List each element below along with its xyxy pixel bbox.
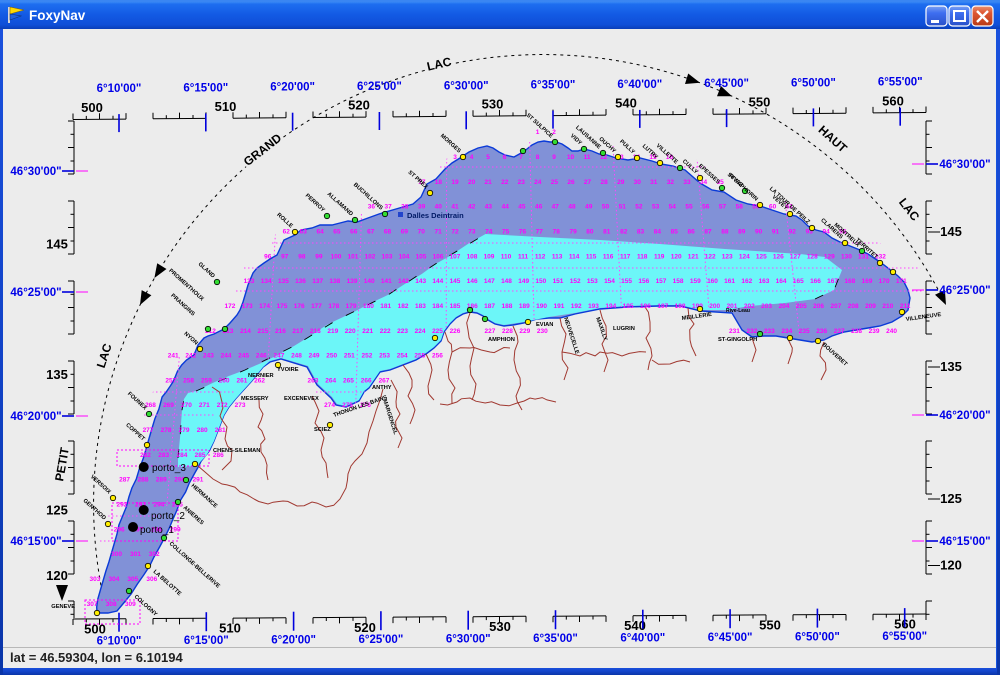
svg-text:54: 54 bbox=[669, 204, 677, 211]
svg-text:118: 118 bbox=[637, 253, 648, 260]
svg-text:3: 3 bbox=[453, 154, 457, 161]
svg-text:76: 76 bbox=[519, 229, 527, 236]
svg-text:235: 235 bbox=[799, 328, 810, 335]
svg-text:EVIAN: EVIAN bbox=[536, 322, 553, 328]
svg-text:SCIEZ: SCIEZ bbox=[314, 427, 331, 433]
svg-text:173: 173 bbox=[242, 303, 253, 310]
svg-text:62: 62 bbox=[283, 229, 291, 236]
svg-text:254: 254 bbox=[397, 353, 408, 360]
svg-text:19: 19 bbox=[451, 179, 459, 186]
svg-text:208: 208 bbox=[848, 303, 859, 310]
svg-text:FoxyNav: FoxyNav bbox=[29, 8, 86, 23]
svg-text:31: 31 bbox=[650, 179, 658, 186]
svg-text:156: 156 bbox=[638, 278, 649, 285]
svg-text:278: 278 bbox=[161, 427, 172, 434]
svg-text:24: 24 bbox=[534, 179, 542, 186]
svg-text:139: 139 bbox=[347, 278, 358, 285]
svg-text:28: 28 bbox=[600, 179, 608, 186]
svg-text:Dalles Deintrain: Dalles Deintrain bbox=[407, 211, 464, 220]
svg-text:141: 141 bbox=[381, 278, 392, 285]
svg-text:porto_1: porto_1 bbox=[140, 525, 174, 536]
svg-text:47: 47 bbox=[552, 204, 560, 211]
svg-text:11: 11 bbox=[584, 154, 591, 161]
svg-text:37: 37 bbox=[384, 204, 392, 211]
svg-text:33: 33 bbox=[683, 179, 691, 186]
svg-text:98: 98 bbox=[298, 253, 306, 260]
svg-text:107: 107 bbox=[450, 253, 461, 260]
svg-text:74: 74 bbox=[485, 229, 493, 236]
svg-text:66: 66 bbox=[350, 229, 358, 236]
svg-text:111: 111 bbox=[518, 253, 529, 260]
svg-text:6°10'00": 6°10'00" bbox=[97, 636, 142, 648]
svg-text:175: 175 bbox=[276, 303, 287, 310]
svg-text:6°50'00": 6°50'00" bbox=[795, 632, 840, 644]
svg-text:550: 550 bbox=[749, 94, 771, 109]
svg-text:138: 138 bbox=[329, 278, 340, 285]
svg-text:210: 210 bbox=[882, 303, 893, 310]
svg-text:240: 240 bbox=[886, 328, 897, 335]
svg-text:500: 500 bbox=[81, 100, 103, 115]
svg-text:257: 257 bbox=[165, 377, 176, 384]
svg-text:179: 179 bbox=[346, 303, 357, 310]
svg-text:125: 125 bbox=[46, 503, 68, 518]
svg-text:44: 44 bbox=[502, 204, 510, 211]
svg-text:520: 520 bbox=[348, 98, 370, 113]
svg-text:192: 192 bbox=[571, 303, 582, 310]
svg-text:301: 301 bbox=[130, 551, 141, 558]
svg-text:MESSERY: MESSERY bbox=[241, 396, 269, 402]
svg-text:550: 550 bbox=[759, 617, 781, 632]
svg-text:56: 56 bbox=[702, 204, 710, 211]
svg-text:520: 520 bbox=[354, 620, 376, 635]
svg-text:183: 183 bbox=[415, 303, 426, 310]
svg-text:540: 540 bbox=[615, 96, 637, 111]
svg-text:22: 22 bbox=[501, 179, 509, 186]
svg-text:239: 239 bbox=[869, 328, 880, 335]
svg-text:187: 187 bbox=[484, 303, 495, 310]
svg-text:296: 296 bbox=[114, 526, 125, 533]
svg-text:38: 38 bbox=[401, 204, 409, 211]
svg-text:104: 104 bbox=[399, 253, 410, 260]
svg-text:GENEVE: GENEVE bbox=[51, 604, 75, 610]
svg-text:265: 265 bbox=[343, 377, 354, 384]
svg-text:280: 280 bbox=[197, 427, 208, 434]
svg-text:238: 238 bbox=[851, 328, 862, 335]
svg-text:154: 154 bbox=[604, 278, 615, 285]
svg-text:250: 250 bbox=[326, 353, 337, 360]
svg-text:113: 113 bbox=[552, 253, 563, 260]
svg-text:6°35'00": 6°35'00" bbox=[533, 633, 578, 645]
svg-text:231: 231 bbox=[729, 328, 740, 335]
svg-text:110: 110 bbox=[501, 253, 512, 260]
svg-text:6°45'00": 6°45'00" bbox=[708, 632, 753, 644]
svg-text:41: 41 bbox=[451, 204, 459, 211]
svg-text:260: 260 bbox=[219, 377, 230, 384]
svg-text:193: 193 bbox=[588, 303, 599, 310]
svg-text:6°40'00": 6°40'00" bbox=[620, 633, 665, 645]
svg-text:292: 292 bbox=[116, 502, 127, 509]
svg-text:174: 174 bbox=[259, 303, 270, 310]
svg-text:112: 112 bbox=[535, 253, 546, 260]
svg-text:87: 87 bbox=[704, 229, 712, 236]
svg-text:120: 120 bbox=[940, 558, 962, 573]
svg-text:97: 97 bbox=[281, 253, 289, 260]
svg-text:219: 219 bbox=[327, 328, 338, 335]
svg-text:221: 221 bbox=[362, 328, 373, 335]
svg-text:101: 101 bbox=[347, 253, 358, 260]
svg-text:258: 258 bbox=[183, 377, 194, 384]
svg-text:70: 70 bbox=[418, 229, 426, 236]
svg-text:46°30'00": 46°30'00" bbox=[939, 159, 990, 171]
svg-text:48: 48 bbox=[568, 204, 576, 211]
svg-text:189: 189 bbox=[519, 303, 530, 310]
svg-text:96: 96 bbox=[264, 253, 272, 260]
svg-text:279: 279 bbox=[179, 427, 190, 434]
svg-text:236: 236 bbox=[816, 328, 827, 335]
svg-text:256: 256 bbox=[432, 353, 443, 360]
svg-text:149: 149 bbox=[518, 278, 529, 285]
svg-text:122: 122 bbox=[705, 253, 716, 260]
svg-text:27: 27 bbox=[584, 179, 592, 186]
svg-text:144: 144 bbox=[432, 278, 443, 285]
svg-text:71: 71 bbox=[434, 229, 442, 236]
svg-text:245: 245 bbox=[238, 353, 249, 360]
svg-text:205: 205 bbox=[796, 303, 807, 310]
svg-text:211: 211 bbox=[900, 303, 911, 310]
svg-text:196: 196 bbox=[640, 303, 651, 310]
svg-text:126: 126 bbox=[773, 253, 784, 260]
svg-text:114: 114 bbox=[569, 253, 580, 260]
svg-text:117: 117 bbox=[620, 253, 631, 260]
svg-text:303: 303 bbox=[89, 576, 100, 583]
svg-text:264: 264 bbox=[325, 377, 336, 384]
svg-text:242: 242 bbox=[185, 353, 196, 360]
svg-text:42: 42 bbox=[468, 204, 476, 211]
svg-text:203: 203 bbox=[761, 303, 772, 310]
svg-text:porto_2: porto_2 bbox=[151, 511, 185, 522]
svg-text:165: 165 bbox=[793, 278, 804, 285]
svg-text:237: 237 bbox=[834, 328, 845, 335]
svg-text:259: 259 bbox=[201, 377, 212, 384]
svg-text:198: 198 bbox=[675, 303, 686, 310]
svg-text:73: 73 bbox=[468, 229, 476, 236]
svg-text:225: 225 bbox=[432, 328, 443, 335]
svg-text:284: 284 bbox=[176, 452, 187, 459]
svg-text:308: 308 bbox=[106, 601, 117, 608]
svg-text:CHENS-S/LEMAN: CHENS-S/LEMAN bbox=[213, 448, 260, 454]
svg-text:23: 23 bbox=[518, 179, 526, 186]
svg-text:166: 166 bbox=[810, 278, 821, 285]
svg-text:123: 123 bbox=[722, 253, 733, 260]
svg-text:120: 120 bbox=[46, 568, 68, 583]
svg-text:6°55'00": 6°55'00" bbox=[882, 631, 927, 643]
svg-text:lat = 46.59304, lon = 6.10194: lat = 46.59304, lon = 6.10194 bbox=[10, 650, 184, 665]
svg-text:232: 232 bbox=[746, 328, 757, 335]
svg-text:234: 234 bbox=[781, 328, 792, 335]
svg-text:78: 78 bbox=[553, 229, 561, 236]
svg-text:190: 190 bbox=[536, 303, 547, 310]
svg-text:304: 304 bbox=[108, 576, 119, 583]
svg-text:LUGRIN: LUGRIN bbox=[613, 326, 635, 332]
svg-text:103: 103 bbox=[381, 253, 392, 260]
svg-text:263: 263 bbox=[307, 377, 318, 384]
svg-text:270: 270 bbox=[181, 402, 192, 409]
svg-text:46°15'00": 46°15'00" bbox=[939, 536, 990, 548]
svg-text:164: 164 bbox=[776, 278, 787, 285]
svg-text:69: 69 bbox=[401, 229, 409, 236]
svg-text:261: 261 bbox=[236, 377, 247, 384]
svg-text:305: 305 bbox=[127, 576, 138, 583]
svg-text:248: 248 bbox=[291, 353, 302, 360]
svg-text:274: 274 bbox=[324, 402, 335, 409]
svg-text:251: 251 bbox=[344, 353, 355, 360]
svg-text:182: 182 bbox=[398, 303, 409, 310]
svg-text:269: 269 bbox=[163, 402, 174, 409]
svg-text:20: 20 bbox=[468, 179, 476, 186]
svg-text:206: 206 bbox=[813, 303, 824, 310]
svg-text:160: 160 bbox=[707, 278, 718, 285]
svg-text:151: 151 bbox=[553, 278, 564, 285]
svg-text:6°20'00": 6°20'00" bbox=[271, 635, 316, 647]
svg-text:99: 99 bbox=[315, 253, 323, 260]
svg-text:180: 180 bbox=[363, 303, 374, 310]
svg-text:46°30'00": 46°30'00" bbox=[10, 166, 61, 178]
svg-text:294: 294 bbox=[153, 502, 164, 509]
svg-text:129: 129 bbox=[824, 253, 835, 260]
svg-text:porto_3: porto_3 bbox=[152, 463, 186, 474]
svg-text:155: 155 bbox=[621, 278, 632, 285]
svg-text:307: 307 bbox=[87, 601, 98, 608]
svg-text:252: 252 bbox=[361, 353, 372, 360]
svg-text:6°35'00": 6°35'00" bbox=[531, 80, 576, 92]
svg-text:285: 285 bbox=[195, 452, 206, 459]
svg-text:116: 116 bbox=[603, 253, 614, 260]
svg-text:530: 530 bbox=[489, 619, 511, 634]
svg-text:18: 18 bbox=[435, 179, 443, 186]
svg-text:NERNIER: NERNIER bbox=[248, 373, 274, 379]
svg-text:204: 204 bbox=[779, 303, 790, 310]
svg-text:88: 88 bbox=[721, 229, 729, 236]
svg-text:124: 124 bbox=[739, 253, 750, 260]
svg-text:52: 52 bbox=[635, 204, 643, 211]
svg-text:6°20'00": 6°20'00" bbox=[270, 82, 315, 94]
svg-text:169: 169 bbox=[861, 278, 872, 285]
svg-text:224: 224 bbox=[415, 328, 426, 335]
svg-text:217: 217 bbox=[292, 328, 303, 335]
svg-text:86: 86 bbox=[687, 229, 695, 236]
svg-text:133: 133 bbox=[244, 278, 255, 285]
svg-text:46°25'00": 46°25'00" bbox=[10, 287, 61, 299]
svg-text:226: 226 bbox=[450, 328, 461, 335]
svg-text:233: 233 bbox=[764, 328, 775, 335]
svg-text:6°10'00": 6°10'00" bbox=[97, 83, 142, 95]
svg-text:125: 125 bbox=[940, 491, 962, 506]
svg-text:172: 172 bbox=[224, 303, 235, 310]
svg-text:241: 241 bbox=[168, 353, 179, 360]
svg-text:68: 68 bbox=[384, 229, 392, 236]
svg-text:6°55'00": 6°55'00" bbox=[878, 77, 923, 89]
svg-text:249: 249 bbox=[309, 353, 320, 360]
svg-text:72: 72 bbox=[451, 229, 459, 236]
svg-text:6°25'00": 6°25'00" bbox=[357, 81, 402, 93]
svg-text:26: 26 bbox=[567, 179, 575, 186]
svg-text:29: 29 bbox=[617, 179, 625, 186]
svg-text:6°40'00": 6°40'00" bbox=[617, 79, 662, 91]
svg-text:115: 115 bbox=[586, 253, 597, 260]
svg-text:134: 134 bbox=[261, 278, 272, 285]
svg-text:177: 177 bbox=[311, 303, 322, 310]
svg-text:289: 289 bbox=[156, 477, 167, 484]
svg-text:4: 4 bbox=[470, 154, 474, 161]
svg-text:6°30'00": 6°30'00" bbox=[446, 634, 491, 646]
svg-text:51: 51 bbox=[619, 204, 627, 211]
svg-text:6°25'00": 6°25'00" bbox=[359, 634, 404, 646]
svg-text:43: 43 bbox=[485, 204, 493, 211]
svg-text:10: 10 bbox=[567, 154, 575, 161]
svg-text:91: 91 bbox=[772, 229, 780, 236]
svg-text:39: 39 bbox=[418, 204, 426, 211]
svg-text:185: 185 bbox=[450, 303, 461, 310]
svg-text:1: 1 bbox=[536, 129, 540, 136]
svg-text:ANTHY: ANTHY bbox=[372, 385, 392, 391]
svg-text:146: 146 bbox=[467, 278, 478, 285]
svg-text:46°15'00": 46°15'00" bbox=[10, 536, 61, 548]
svg-text:143: 143 bbox=[415, 278, 426, 285]
svg-text:21: 21 bbox=[484, 179, 492, 186]
svg-text:102: 102 bbox=[364, 253, 375, 260]
svg-text:243: 243 bbox=[203, 353, 214, 360]
svg-text:64: 64 bbox=[316, 229, 324, 236]
svg-text:46°20'00": 46°20'00" bbox=[939, 410, 990, 422]
svg-text:300: 300 bbox=[111, 551, 122, 558]
svg-text:40: 40 bbox=[435, 204, 443, 211]
svg-text:181: 181 bbox=[380, 303, 391, 310]
svg-text:32: 32 bbox=[667, 179, 675, 186]
svg-text:283: 283 bbox=[158, 452, 169, 459]
svg-text:125: 125 bbox=[756, 253, 767, 260]
svg-text:148: 148 bbox=[501, 278, 512, 285]
svg-text:30: 30 bbox=[634, 179, 642, 186]
svg-text:60: 60 bbox=[769, 204, 777, 211]
svg-text:9: 9 bbox=[552, 154, 556, 161]
svg-text:229: 229 bbox=[519, 328, 530, 335]
svg-text:309: 309 bbox=[125, 601, 136, 608]
svg-text:163: 163 bbox=[759, 278, 770, 285]
svg-text:176: 176 bbox=[294, 303, 305, 310]
svg-text:247: 247 bbox=[273, 353, 284, 360]
svg-text:55: 55 bbox=[685, 204, 693, 211]
svg-text:45: 45 bbox=[518, 204, 526, 211]
svg-text:128: 128 bbox=[807, 253, 818, 260]
svg-text:137: 137 bbox=[312, 278, 323, 285]
svg-text:75: 75 bbox=[502, 229, 510, 236]
svg-text:510: 510 bbox=[215, 99, 237, 114]
svg-text:92: 92 bbox=[789, 229, 797, 236]
svg-text:AMPHION: AMPHION bbox=[488, 337, 515, 343]
svg-text:161: 161 bbox=[724, 278, 735, 285]
svg-text:273: 273 bbox=[235, 402, 246, 409]
svg-text:157: 157 bbox=[656, 278, 667, 285]
svg-text:6°50'00": 6°50'00" bbox=[791, 77, 836, 89]
svg-text:230: 230 bbox=[537, 328, 548, 335]
svg-text:127: 127 bbox=[790, 253, 801, 260]
svg-text:119: 119 bbox=[654, 253, 665, 260]
svg-text:5: 5 bbox=[486, 154, 490, 161]
svg-text:25: 25 bbox=[551, 179, 559, 186]
svg-text:510: 510 bbox=[219, 621, 241, 636]
svg-text:120: 120 bbox=[671, 253, 682, 260]
svg-text:218: 218 bbox=[310, 328, 321, 335]
svg-text:135: 135 bbox=[46, 367, 68, 382]
svg-text:194: 194 bbox=[605, 303, 616, 310]
svg-text:302: 302 bbox=[149, 551, 160, 558]
svg-text:560: 560 bbox=[882, 93, 904, 108]
svg-text:58: 58 bbox=[736, 204, 744, 211]
svg-text:106: 106 bbox=[433, 253, 444, 260]
svg-text:142: 142 bbox=[398, 278, 409, 285]
svg-text:220: 220 bbox=[345, 328, 356, 335]
svg-text:67: 67 bbox=[367, 229, 375, 236]
svg-text:281: 281 bbox=[215, 427, 226, 434]
svg-text:223: 223 bbox=[397, 328, 408, 335]
svg-text:287: 287 bbox=[119, 477, 130, 484]
svg-text:131: 131 bbox=[858, 253, 869, 260]
svg-text:253: 253 bbox=[379, 353, 390, 360]
svg-text:79: 79 bbox=[569, 229, 577, 236]
svg-text:227: 227 bbox=[484, 328, 495, 335]
svg-text:140: 140 bbox=[364, 278, 375, 285]
svg-text:135: 135 bbox=[940, 359, 962, 374]
svg-text:77: 77 bbox=[536, 229, 544, 236]
svg-text:121: 121 bbox=[688, 253, 699, 260]
svg-text:108: 108 bbox=[467, 253, 478, 260]
svg-text:6°30'00": 6°30'00" bbox=[444, 80, 489, 92]
svg-text:ST-GINGOLPH: ST-GINGOLPH bbox=[718, 337, 757, 343]
svg-text:216: 216 bbox=[275, 328, 286, 335]
svg-text:167: 167 bbox=[827, 278, 838, 285]
svg-text:63: 63 bbox=[300, 229, 308, 236]
svg-text:65: 65 bbox=[333, 229, 341, 236]
svg-text:191: 191 bbox=[553, 303, 564, 310]
svg-text:EXCENEVEX: EXCENEVEX bbox=[284, 396, 319, 402]
svg-text:YVOIRE: YVOIRE bbox=[277, 367, 299, 373]
svg-text:100: 100 bbox=[330, 253, 341, 260]
svg-text:171: 171 bbox=[896, 278, 907, 285]
svg-text:255: 255 bbox=[414, 353, 425, 360]
svg-text:6°45'00": 6°45'00" bbox=[704, 78, 749, 90]
svg-text:188: 188 bbox=[501, 303, 512, 310]
svg-text:46°20'00": 46°20'00" bbox=[10, 411, 61, 423]
svg-text:214: 214 bbox=[240, 328, 251, 335]
svg-text:178: 178 bbox=[328, 303, 339, 310]
svg-text:150: 150 bbox=[535, 278, 546, 285]
svg-text:135: 135 bbox=[278, 278, 289, 285]
svg-text:153: 153 bbox=[587, 278, 598, 285]
svg-text:46°25'00": 46°25'00" bbox=[939, 285, 990, 297]
svg-text:277: 277 bbox=[143, 427, 154, 434]
svg-text:46: 46 bbox=[535, 204, 543, 211]
svg-text:267: 267 bbox=[379, 377, 390, 384]
svg-text:222: 222 bbox=[380, 328, 391, 335]
svg-text:168: 168 bbox=[844, 278, 855, 285]
svg-text:145: 145 bbox=[46, 237, 68, 252]
svg-text:6: 6 bbox=[503, 154, 507, 161]
svg-text:7: 7 bbox=[519, 154, 523, 161]
svg-text:89: 89 bbox=[738, 229, 746, 236]
svg-text:152: 152 bbox=[570, 278, 581, 285]
svg-text:82: 82 bbox=[620, 229, 628, 236]
svg-text:Rive-Leau: Rive-Leau bbox=[726, 308, 750, 314]
